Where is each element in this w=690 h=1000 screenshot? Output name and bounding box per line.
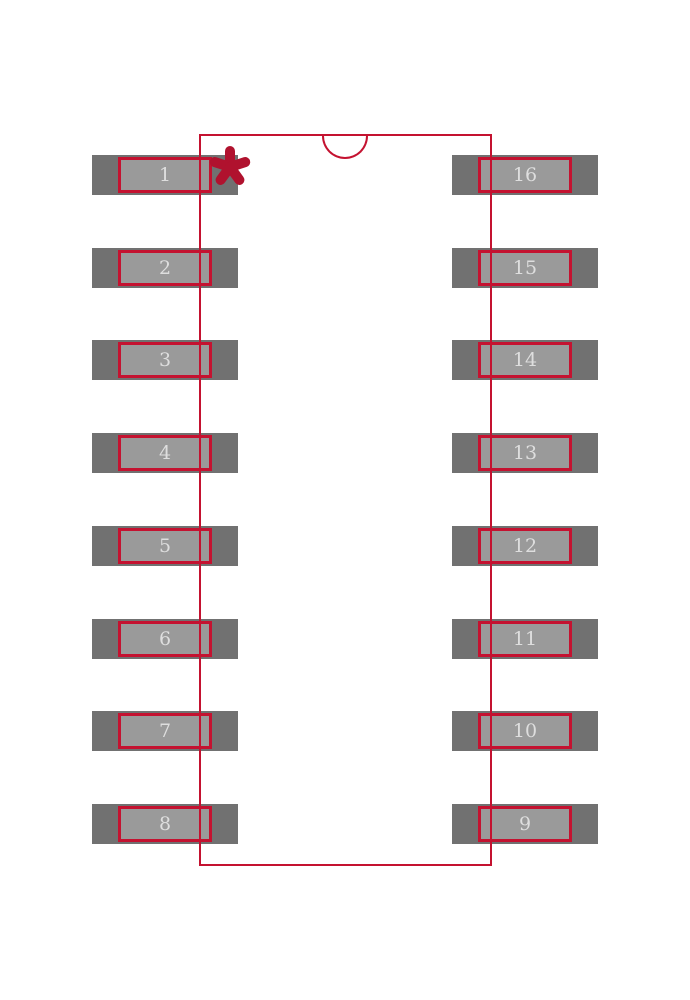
pad-number: 8 bbox=[159, 815, 171, 834]
pad-9-land: 9 bbox=[478, 806, 572, 842]
pad-9: 9 bbox=[452, 804, 598, 844]
pad-3: 3 bbox=[92, 340, 238, 380]
pad-1: 1 bbox=[92, 155, 238, 195]
pad-1-land: 1 bbox=[118, 157, 212, 193]
pad-number: 6 bbox=[159, 630, 171, 649]
pad-14: 14 bbox=[452, 340, 598, 380]
pad-number: 10 bbox=[513, 722, 537, 741]
pad-number: 2 bbox=[159, 259, 171, 278]
pad-number: 13 bbox=[513, 444, 537, 463]
pad-10-land: 10 bbox=[478, 713, 572, 749]
pad-number: 4 bbox=[159, 444, 171, 463]
pad-2: 2 bbox=[92, 248, 238, 288]
pad-5: 5 bbox=[92, 526, 238, 566]
pad-15-land: 15 bbox=[478, 250, 572, 286]
pad-number: 12 bbox=[513, 537, 537, 556]
pad-7-land: 7 bbox=[118, 713, 212, 749]
pad-number: 16 bbox=[513, 166, 537, 185]
pad-number: 9 bbox=[519, 815, 531, 834]
footprint-canvas: 12345678161514131211109 bbox=[0, 0, 690, 1000]
pad-3-land: 3 bbox=[118, 342, 212, 378]
pad-15: 15 bbox=[452, 248, 598, 288]
pad-7: 7 bbox=[92, 711, 238, 751]
pad-12: 12 bbox=[452, 526, 598, 566]
pad-11-land: 11 bbox=[478, 621, 572, 657]
pad-6-land: 6 bbox=[118, 621, 212, 657]
pad-16-land: 16 bbox=[478, 157, 572, 193]
pad-number: 3 bbox=[159, 351, 171, 370]
pad-number: 15 bbox=[513, 259, 537, 278]
pad-13-land: 13 bbox=[478, 435, 572, 471]
pad-11: 11 bbox=[452, 619, 598, 659]
pad-number: 14 bbox=[513, 351, 537, 370]
pad-number: 11 bbox=[513, 630, 537, 649]
pad-13: 13 bbox=[452, 433, 598, 473]
pad-number: 5 bbox=[159, 537, 171, 556]
pad-14-land: 14 bbox=[478, 342, 572, 378]
pad-number: 7 bbox=[159, 722, 171, 741]
pad-8: 8 bbox=[92, 804, 238, 844]
pad-5-land: 5 bbox=[118, 528, 212, 564]
pad-4: 4 bbox=[92, 433, 238, 473]
pad-12-land: 12 bbox=[478, 528, 572, 564]
pad-4-land: 4 bbox=[118, 435, 212, 471]
pad-10: 10 bbox=[452, 711, 598, 751]
pad-8-land: 8 bbox=[118, 806, 212, 842]
pad-2-land: 2 bbox=[118, 250, 212, 286]
pad-number: 1 bbox=[159, 166, 171, 185]
pad-6: 6 bbox=[92, 619, 238, 659]
pads-layer: 12345678161514131211109 bbox=[0, 0, 690, 1000]
pad-16: 16 bbox=[452, 155, 598, 195]
